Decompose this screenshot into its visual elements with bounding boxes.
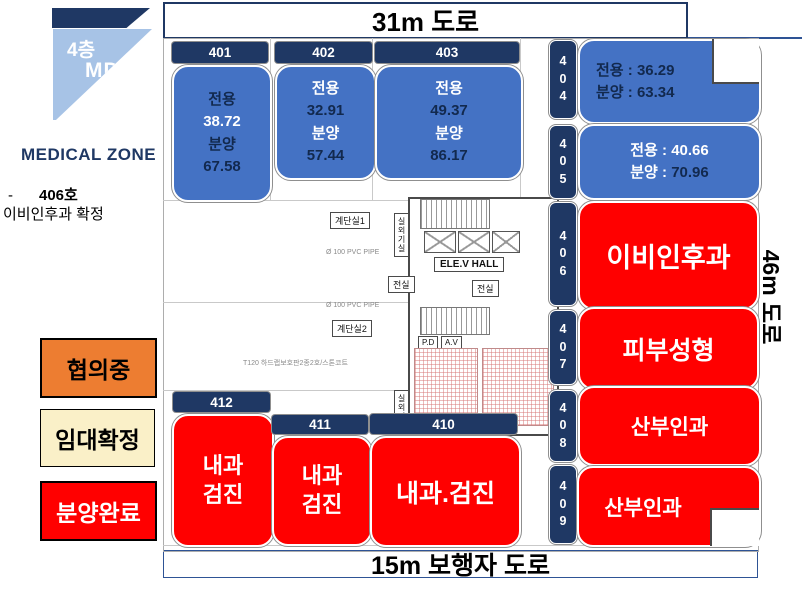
unit-405-sale-value: 70.96 xyxy=(671,164,709,181)
legend-sold-out: 분양완료 xyxy=(40,481,157,541)
unit-412-header: 412 xyxy=(173,392,270,412)
unit-403-number: 403 xyxy=(436,45,459,60)
note-dash: - xyxy=(8,187,13,204)
vestibule-label: 전실 xyxy=(388,276,415,293)
unit-405-block: 전용 : 40.66 분양 : 70.96 xyxy=(578,124,761,200)
unit-403-header: 403 xyxy=(375,42,519,63)
unit-405-digit: 5 xyxy=(560,171,567,189)
outdoor-unit-room-label: 실외기실 xyxy=(394,213,409,257)
unit-403-area-label: 전용 xyxy=(430,78,468,101)
unit-411-tenant-line1: 내과 xyxy=(302,462,342,491)
unit-403-area-value: 49.37 xyxy=(430,100,468,123)
unit-411-block: 내과 검진 xyxy=(272,436,372,546)
unit-405-digit: 4 xyxy=(560,136,567,154)
unit-404-notch xyxy=(712,39,759,84)
unit-405-digit: 0 xyxy=(560,153,567,171)
floor-label: 4층 xyxy=(67,35,95,62)
note-room-number: 406호 xyxy=(39,187,78,204)
unit-406-tenant: 이비인후과 xyxy=(606,236,730,275)
stair2-hatch xyxy=(420,307,490,335)
unit-407-digit: 7 xyxy=(560,356,567,374)
unit-409-digit: 0 xyxy=(560,496,567,514)
unit-405-label: 4 0 5 xyxy=(549,125,577,199)
unit-401-sale-label: 분양 xyxy=(203,134,241,157)
unit-405-area-value: 40.66 xyxy=(671,142,709,159)
unit-410-header: 410 xyxy=(370,414,517,434)
cad-line xyxy=(163,390,408,391)
elevator-cell xyxy=(492,231,520,253)
unit-406-digit: 6 xyxy=(560,263,567,281)
unit-407-digit: 4 xyxy=(560,321,567,339)
unit-402-sale-label: 분양 xyxy=(307,123,345,146)
unit-403-block: 전용 49.37 분양 86.17 xyxy=(375,65,523,180)
unit-402-header: 402 xyxy=(275,42,372,63)
floor-flag-triangle: 4층 MD xyxy=(53,29,152,120)
floorplan-slide: 4층 MD MEDICAL ZONE -406호 이비인후과 확정 협의중 임대… xyxy=(0,0,802,589)
floor-flag-band xyxy=(52,8,150,28)
stair2-label: 계단실2 xyxy=(332,320,372,337)
unit-403-sale-label: 분양 xyxy=(430,123,468,146)
unit-402-number: 402 xyxy=(312,45,335,60)
unit-406-digit: 4 xyxy=(560,228,567,246)
legend-negotiating: 협의중 xyxy=(40,338,157,398)
elevator-cell xyxy=(458,231,490,253)
unit-405-area-label: 전용 : xyxy=(630,142,671,159)
unit-406-block: 이비인후과 xyxy=(578,201,759,310)
finish-note: T120 하드랩보호판2종2호/스톤코트 xyxy=(243,358,348,368)
unit-407-label: 4 0 7 xyxy=(549,310,577,385)
unit-411-number: 411 xyxy=(309,417,331,432)
unit-410-number: 410 xyxy=(432,417,455,432)
legend-lease-confirmed: 임대확정 xyxy=(40,409,155,467)
unit-407-tenant: 피부성형 xyxy=(622,331,714,367)
unit-401-sale-value: 67.58 xyxy=(203,156,241,179)
unit-401-block: 전용 38.72 분양 67.58 xyxy=(172,65,272,202)
unit-412-block: 내과 검진 xyxy=(172,414,274,547)
elevator-hall-label: ELE.V HALL xyxy=(434,257,504,272)
unit-407-block: 피부성형 xyxy=(578,307,759,390)
unit-401-header: 401 xyxy=(172,42,268,63)
unit-409-notch xyxy=(710,508,759,546)
unit-407-digit: 0 xyxy=(560,339,567,357)
legend-negotiating-label: 협의중 xyxy=(67,351,130,385)
unit-409-label: 4 0 9 xyxy=(549,465,577,544)
unit-408-digit: 4 xyxy=(560,400,567,418)
unit-411-header: 411 xyxy=(272,415,368,434)
unit-402-sale-value: 57.44 xyxy=(307,145,345,168)
pvc-pipe-note: Ø 100 PVC PIPE xyxy=(326,302,379,309)
unit-408-digit: 8 xyxy=(560,435,567,453)
md-label: MD xyxy=(85,59,120,83)
unit-409-digit: 4 xyxy=(560,478,567,496)
unit-404-area-label: 전용 : xyxy=(596,62,637,79)
unit-406-digit: 0 xyxy=(560,245,567,263)
unit-404-sale-label: 분양 : xyxy=(596,84,637,101)
unit-412-number: 412 xyxy=(210,395,233,410)
unit-408-label: 4 0 8 xyxy=(549,390,577,462)
unit-401-area-label: 전용 xyxy=(203,89,241,112)
vestibule-label: 전실 xyxy=(472,280,499,297)
unit-404-digit: 4 xyxy=(560,88,567,106)
road-bottom-bar: 15m 보행자 도로 xyxy=(163,550,758,578)
note-line2: 이비인후과 확정 xyxy=(3,203,104,224)
road-right-label: 46m 도로 xyxy=(764,242,790,352)
stair1-label: 계단실1 xyxy=(330,212,370,229)
zone-title: MEDICAL ZONE xyxy=(21,145,156,165)
unit-408-digit: 0 xyxy=(560,417,567,435)
unit-404-label: 4 0 4 xyxy=(549,40,577,119)
unit-410-block: 내과.검진 xyxy=(370,436,521,547)
unit-401-area-value: 38.72 xyxy=(203,111,241,134)
unit-409-digit: 9 xyxy=(560,513,567,531)
note-line1: -406호 xyxy=(8,184,78,205)
road-top-bar: 31m 도로 xyxy=(163,2,688,39)
unit-404-digit: 0 xyxy=(560,71,567,89)
unit-405-sale-label: 분양 : xyxy=(630,164,671,181)
unit-404-sale-value: 63.34 xyxy=(637,84,675,101)
unit-412-tenant-line1: 내과 xyxy=(203,452,243,481)
unit-402-block: 전용 32.91 분양 57.44 xyxy=(275,65,376,180)
unit-403-sale-value: 86.17 xyxy=(430,145,468,168)
pvc-pipe-note: Ø 100 PVC PIPE xyxy=(326,249,379,256)
unit-410-tenant: 내과.검진 xyxy=(396,474,495,510)
elevator-cell xyxy=(424,231,456,253)
unit-404-area-value: 36.29 xyxy=(637,62,675,79)
legend-sold-out-label: 분양완료 xyxy=(56,494,141,528)
unit-408-block: 산부인과 xyxy=(578,386,761,466)
unit-404-digit: 4 xyxy=(560,53,567,71)
unit-401-number: 401 xyxy=(209,45,232,60)
legend-lease-confirmed-label: 임대확정 xyxy=(55,421,140,455)
stair1-hatch xyxy=(420,199,490,229)
unit-402-area-label: 전용 xyxy=(307,78,345,101)
unit-406-label: 4 0 6 xyxy=(549,202,577,306)
unit-402-area-value: 32.91 xyxy=(307,100,345,123)
unit-412-tenant-line2: 검진 xyxy=(203,481,243,510)
unit-411-tenant-line2: 검진 xyxy=(302,491,342,520)
road-top-label: 31m 도로 xyxy=(372,2,479,39)
unit-408-tenant: 산부인과 xyxy=(631,411,708,441)
